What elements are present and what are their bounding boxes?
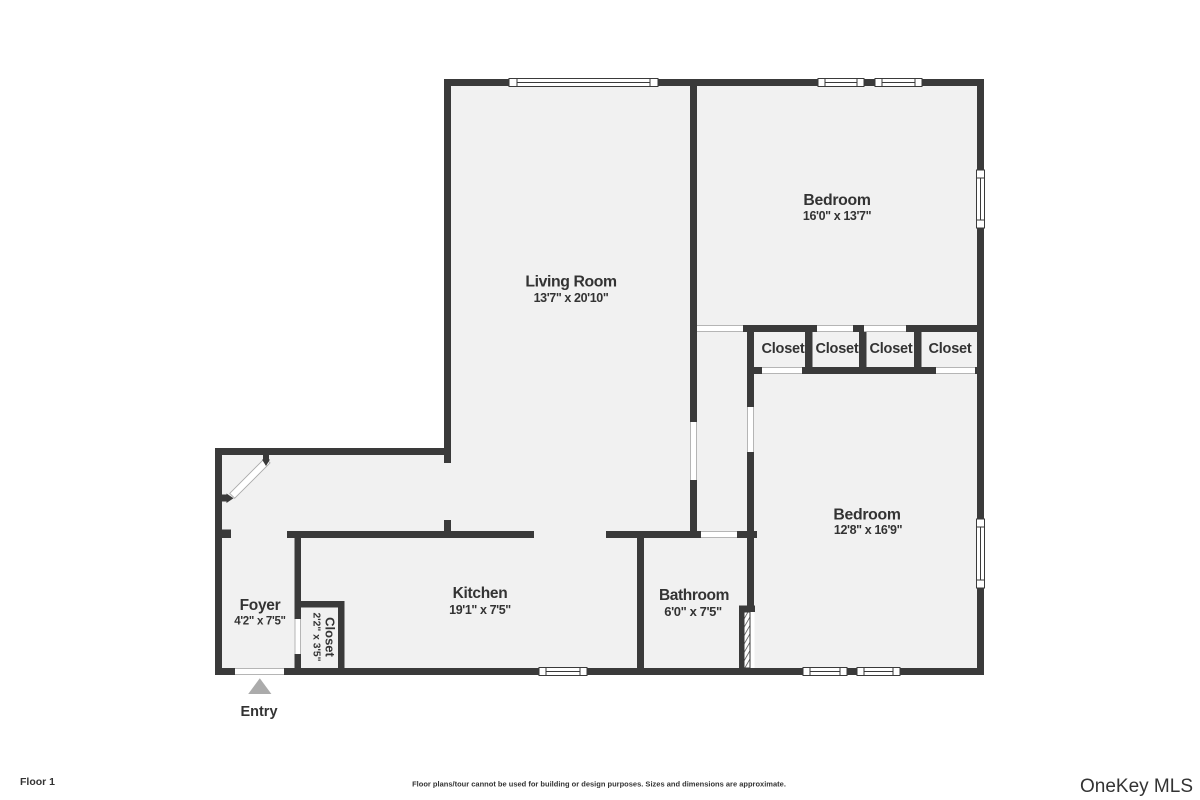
svg-text:16'0" x 13'7": 16'0" x 13'7" bbox=[803, 209, 872, 223]
svg-text:Living Room: Living Room bbox=[525, 274, 617, 291]
svg-text:Closet: Closet bbox=[815, 341, 858, 357]
svg-text:19'1" x 7'5": 19'1" x 7'5" bbox=[449, 603, 511, 617]
svg-text:Bedroom: Bedroom bbox=[833, 507, 900, 524]
svg-text:Entry: Entry bbox=[240, 704, 277, 720]
svg-text:Closet: Closet bbox=[869, 341, 912, 357]
svg-text:Closet: Closet bbox=[323, 617, 338, 657]
svg-text:Floor 1: Floor 1 bbox=[20, 776, 55, 788]
svg-text:2'2" x 3'5": 2'2" x 3'5" bbox=[311, 612, 322, 661]
svg-text:Bathroom: Bathroom bbox=[659, 587, 729, 604]
svg-text:Kitchen: Kitchen bbox=[453, 585, 508, 602]
svg-text:4'2" x 7'5": 4'2" x 7'5" bbox=[234, 616, 285, 628]
svg-text:Closet: Closet bbox=[928, 341, 971, 357]
svg-text:Closet: Closet bbox=[761, 341, 804, 357]
svg-text:6'0" x 7'5": 6'0" x 7'5" bbox=[664, 604, 722, 619]
svg-text:Bedroom: Bedroom bbox=[803, 192, 870, 209]
svg-text:Floor plans/tour cannot be use: Floor plans/tour cannot be used for buil… bbox=[412, 780, 786, 789]
svg-text:12'8" x 16'9": 12'8" x 16'9" bbox=[834, 523, 903, 537]
svg-text:13'7" x 20'10": 13'7" x 20'10" bbox=[534, 291, 609, 305]
svg-text:Foyer: Foyer bbox=[240, 597, 281, 614]
svg-text:OneKey MLS: OneKey MLS bbox=[1080, 776, 1193, 797]
